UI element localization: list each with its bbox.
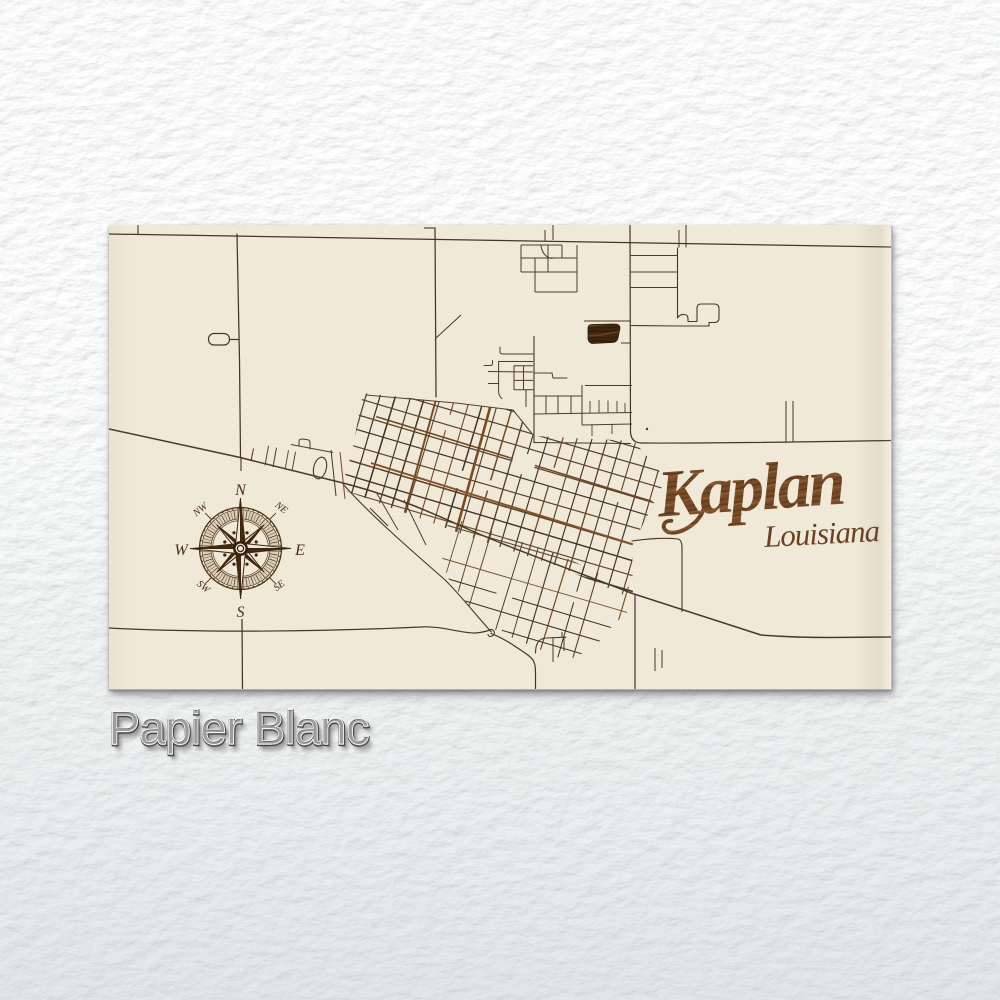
svg-text:Papier Blanc: Papier Blanc (109, 701, 370, 754)
